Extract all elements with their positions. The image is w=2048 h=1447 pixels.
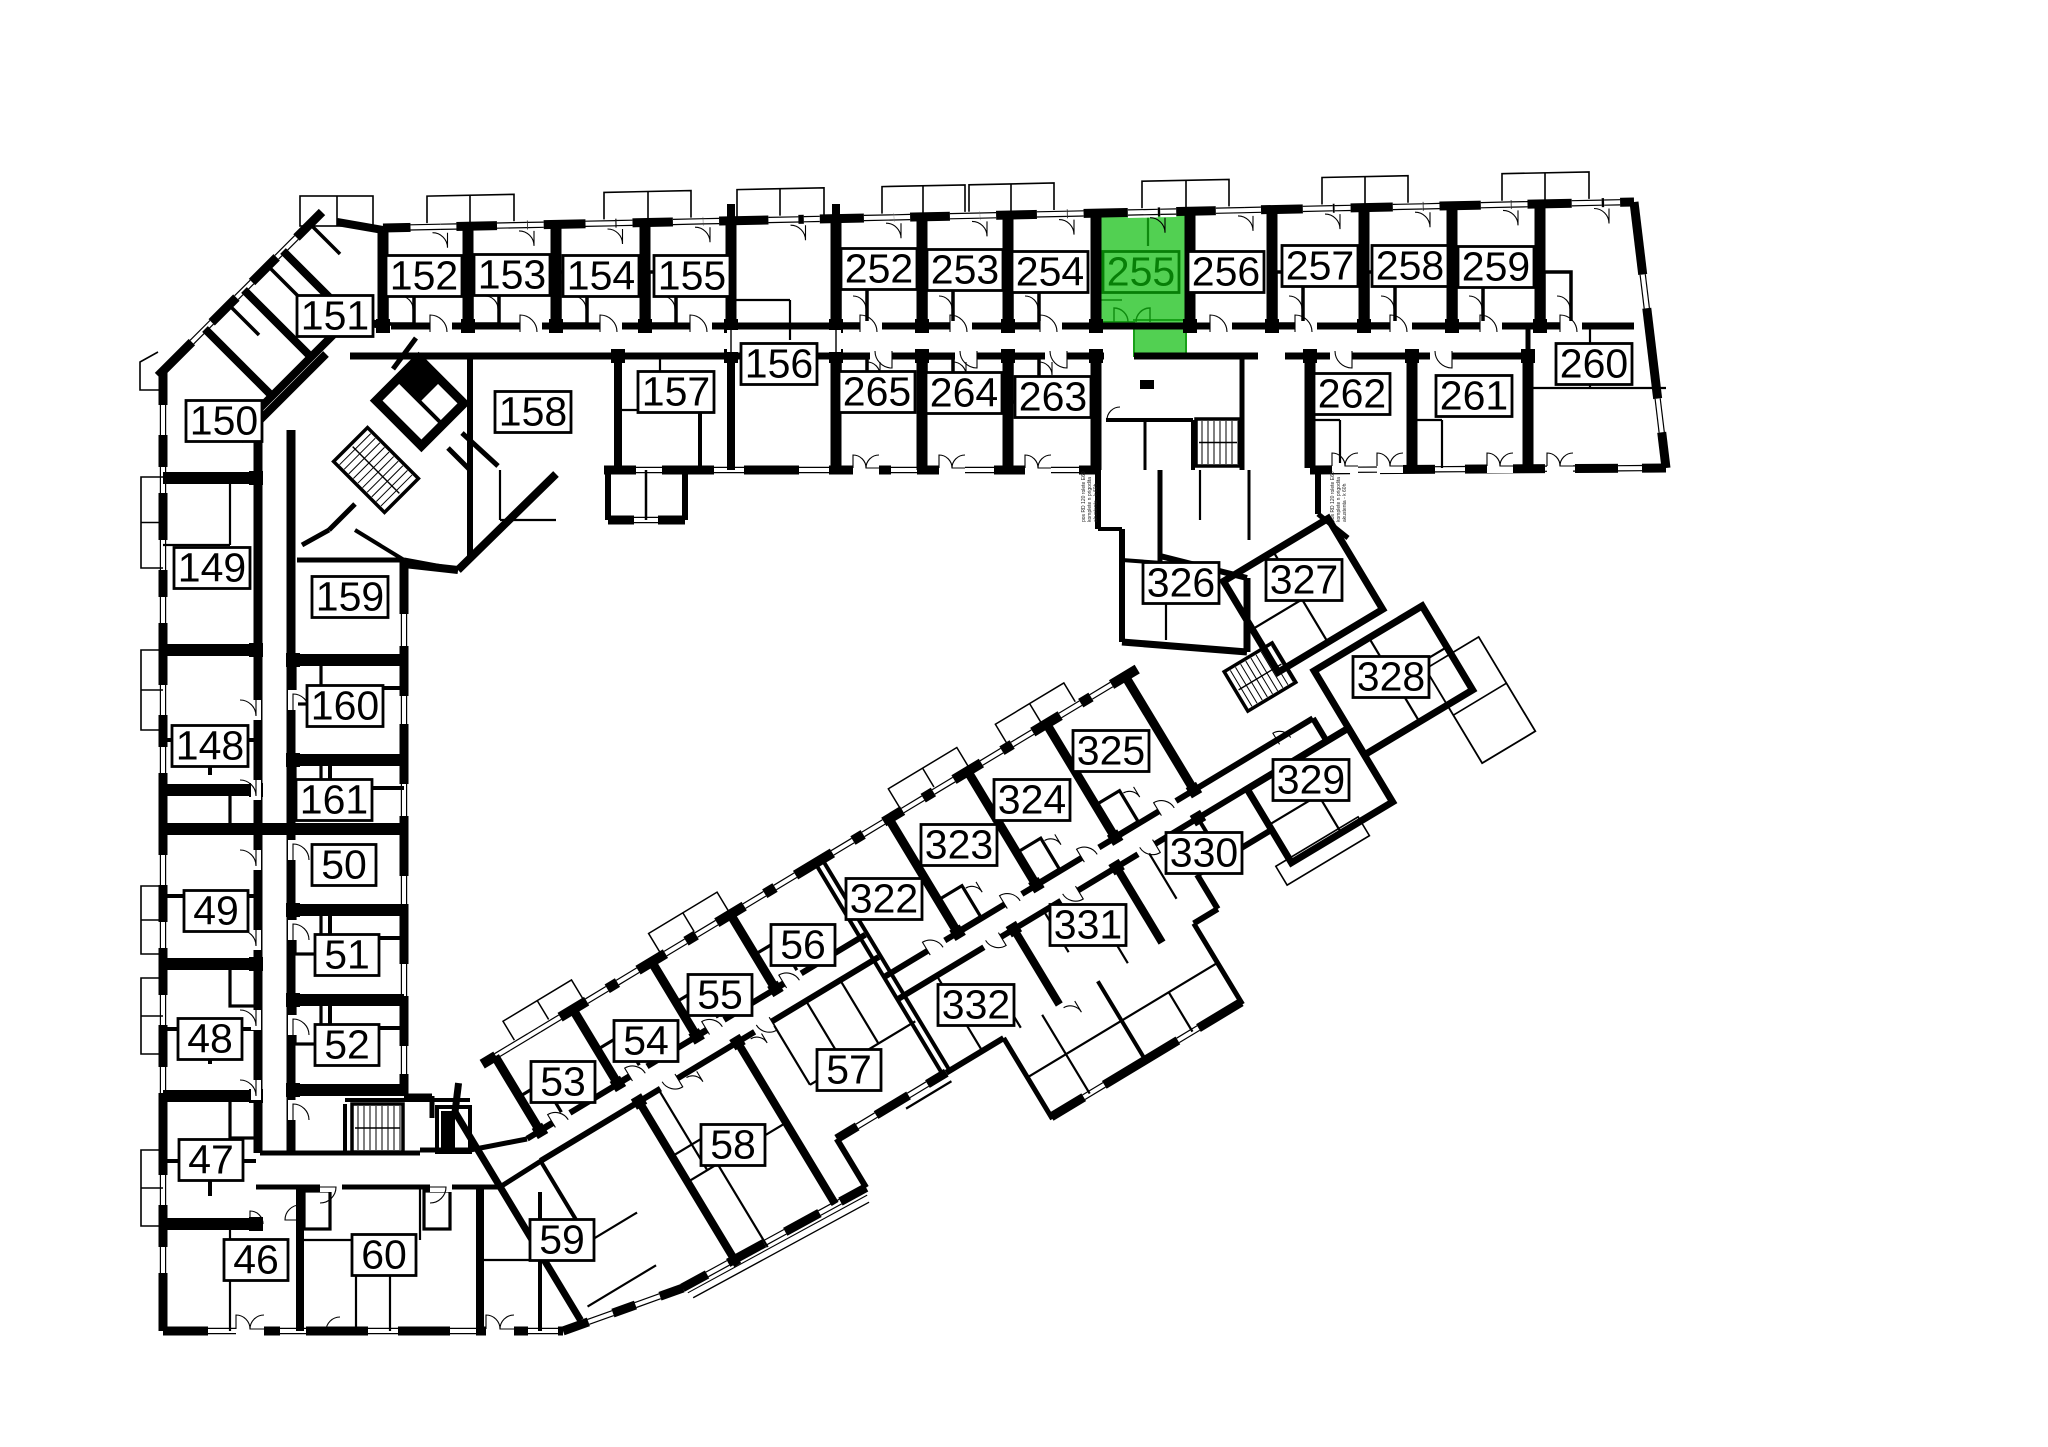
- svg-text:263: 263: [1019, 374, 1087, 420]
- svg-text:253: 253: [931, 247, 999, 293]
- svg-text:327: 327: [1270, 557, 1338, 603]
- svg-text:252: 252: [845, 246, 913, 292]
- svg-text:46: 46: [233, 1237, 279, 1283]
- svg-text:332: 332: [942, 982, 1010, 1028]
- svg-text:48: 48: [187, 1016, 233, 1062]
- svg-text:259: 259: [1462, 244, 1530, 290]
- svg-text:261: 261: [1440, 373, 1508, 419]
- svg-text:154: 154: [567, 253, 635, 299]
- svg-text:52: 52: [324, 1022, 370, 1068]
- svg-text:57: 57: [826, 1047, 872, 1093]
- svg-text:322: 322: [850, 876, 918, 922]
- svg-text:326: 326: [1147, 560, 1215, 606]
- svg-text:155: 155: [658, 253, 726, 299]
- svg-text:324: 324: [998, 777, 1066, 823]
- svg-text:54: 54: [623, 1018, 669, 1064]
- svg-text:257: 257: [1286, 243, 1354, 289]
- svg-text:59: 59: [539, 1217, 585, 1263]
- svg-text:55: 55: [697, 972, 743, 1018]
- svg-text:152: 152: [390, 253, 458, 299]
- svg-text:255: 255: [1107, 249, 1175, 295]
- svg-text:149: 149: [178, 545, 246, 591]
- svg-text:258: 258: [1376, 243, 1444, 289]
- svg-text:256: 256: [1192, 249, 1260, 295]
- svg-text:328: 328: [1357, 654, 1425, 700]
- svg-text:157: 157: [642, 369, 710, 415]
- svg-text:159: 159: [316, 574, 384, 620]
- svg-text:160: 160: [311, 683, 379, 729]
- svg-text:akustenta - k 60h: akustenta - k 60h: [1093, 483, 1099, 522]
- svg-text:51: 51: [324, 932, 370, 978]
- svg-text:148: 148: [176, 723, 244, 769]
- svg-text:264: 264: [930, 370, 998, 416]
- svg-text:325: 325: [1077, 728, 1145, 774]
- svg-text:262: 262: [1318, 371, 1386, 417]
- svg-text:158: 158: [499, 389, 567, 435]
- svg-text:330: 330: [1170, 830, 1238, 876]
- svg-text:150: 150: [190, 398, 258, 444]
- svg-text:49: 49: [193, 888, 239, 934]
- svg-text:53: 53: [540, 1059, 586, 1105]
- svg-text:153: 153: [478, 252, 546, 298]
- svg-text:260: 260: [1560, 341, 1628, 387]
- svg-text:60: 60: [361, 1232, 407, 1278]
- svg-text:151: 151: [301, 293, 369, 339]
- svg-text:akustenta - k 60h: akustenta - k 60h: [1342, 483, 1348, 522]
- svg-text:329: 329: [1277, 757, 1345, 803]
- svg-text:331: 331: [1054, 902, 1122, 948]
- svg-text:50: 50: [321, 842, 367, 888]
- svg-text:161: 161: [300, 777, 368, 823]
- svg-text:265: 265: [843, 369, 911, 415]
- svg-text:56: 56: [780, 922, 826, 968]
- svg-text:58: 58: [710, 1122, 756, 1168]
- svg-text:156: 156: [745, 341, 813, 387]
- svg-text:323: 323: [925, 822, 993, 868]
- svg-text:254: 254: [1016, 249, 1084, 295]
- svg-text:47: 47: [188, 1137, 234, 1183]
